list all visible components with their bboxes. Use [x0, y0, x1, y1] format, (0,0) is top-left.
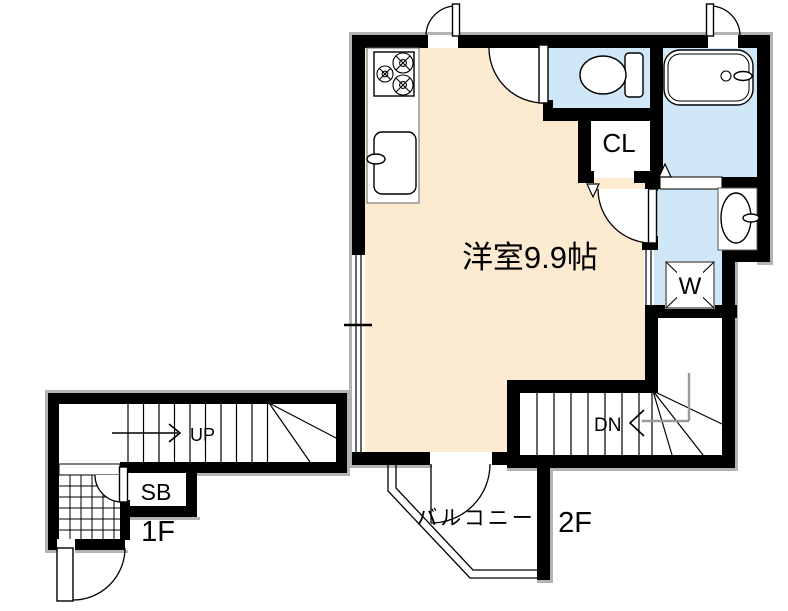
balcony: バルコニー	[388, 462, 550, 580]
washbasin-icon	[718, 188, 759, 250]
shoebox-label: SB	[141, 479, 172, 505]
stove-icon	[374, 52, 414, 96]
floor-plan: W DN バルコニー 洋室9.9帖 CL 2F	[0, 0, 788, 611]
washing-machine-icon: W	[666, 262, 714, 308]
entrance-area	[57, 464, 128, 601]
partition-double-line	[644, 250, 654, 305]
bath-window-opening	[708, 35, 738, 48]
kitchen-door-opening	[428, 35, 458, 48]
balcony-label: バルコニー	[416, 507, 536, 530]
floor-1f-label: 1F	[141, 516, 175, 548]
washroom-opening	[660, 177, 722, 189]
stairwell-floor	[513, 386, 735, 456]
stairs-down-label: DN	[594, 415, 621, 436]
floor-plan-svg: W DN バルコニー 洋室9.9帖 CL 2F	[0, 0, 788, 611]
floor-2f-label: 2F	[558, 507, 592, 539]
balcony-door-opening	[430, 452, 492, 465]
entrance-door-icon	[57, 548, 125, 601]
washer-label: W	[679, 273, 702, 300]
toilet-icon	[580, 53, 643, 97]
bathtub-icon	[664, 50, 753, 105]
closet-label: CL	[602, 128, 635, 158]
stairs-up-label: UP	[190, 425, 215, 445]
room-label: 洋室9.9帖	[462, 240, 598, 275]
kitchen-sink-icon	[367, 132, 416, 194]
entrance-threshold	[59, 464, 120, 475]
kitchen-entry-door-icon	[426, 4, 460, 36]
stairs-up: UP	[112, 403, 336, 462]
bath-vent-window-icon	[707, 4, 741, 36]
